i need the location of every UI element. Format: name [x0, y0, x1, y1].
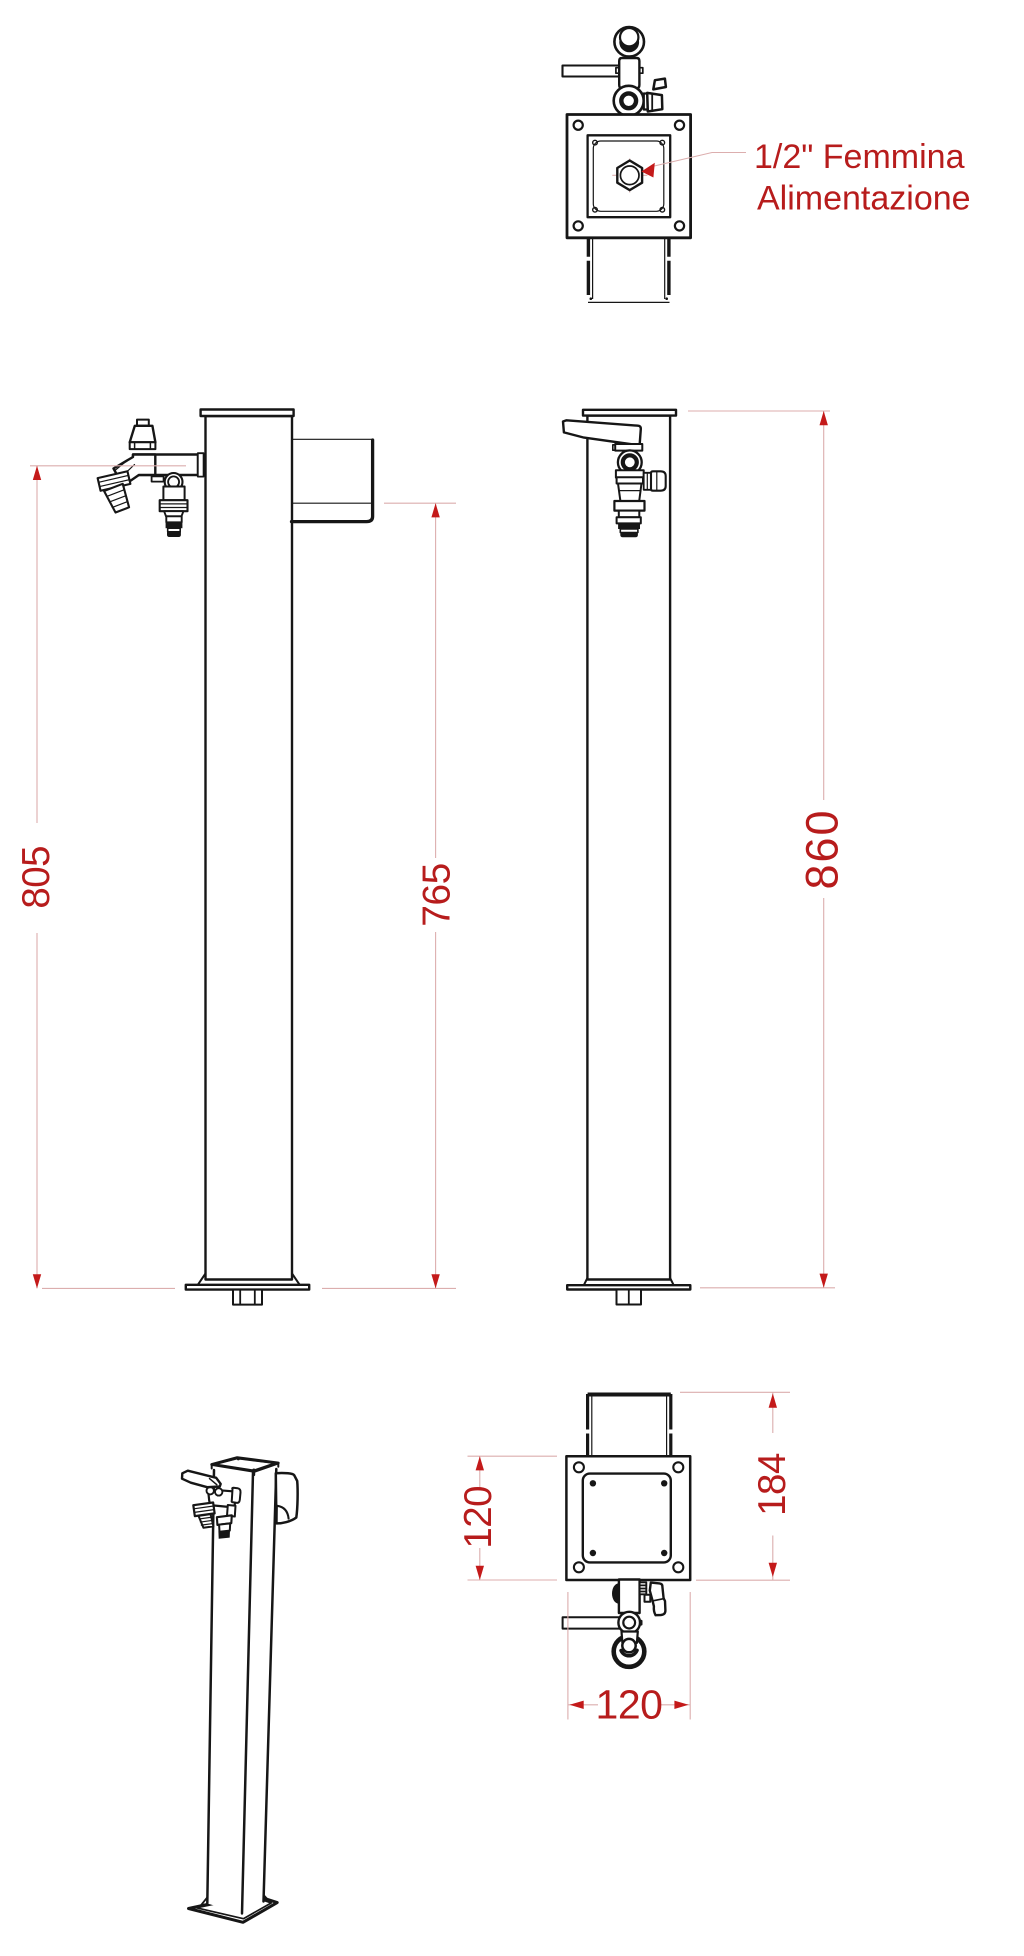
svg-text:1/2" Femmina: 1/2" Femmina [754, 138, 965, 176]
svg-text:Alimentazione: Alimentazione [757, 180, 971, 218]
svg-text:184: 184 [751, 1453, 794, 1516]
svg-text:120: 120 [457, 1486, 500, 1549]
svg-text:860: 860 [797, 808, 848, 889]
svg-text:805: 805 [15, 846, 58, 909]
svg-text:120: 120 [596, 1682, 663, 1728]
svg-text:765: 765 [416, 863, 459, 927]
